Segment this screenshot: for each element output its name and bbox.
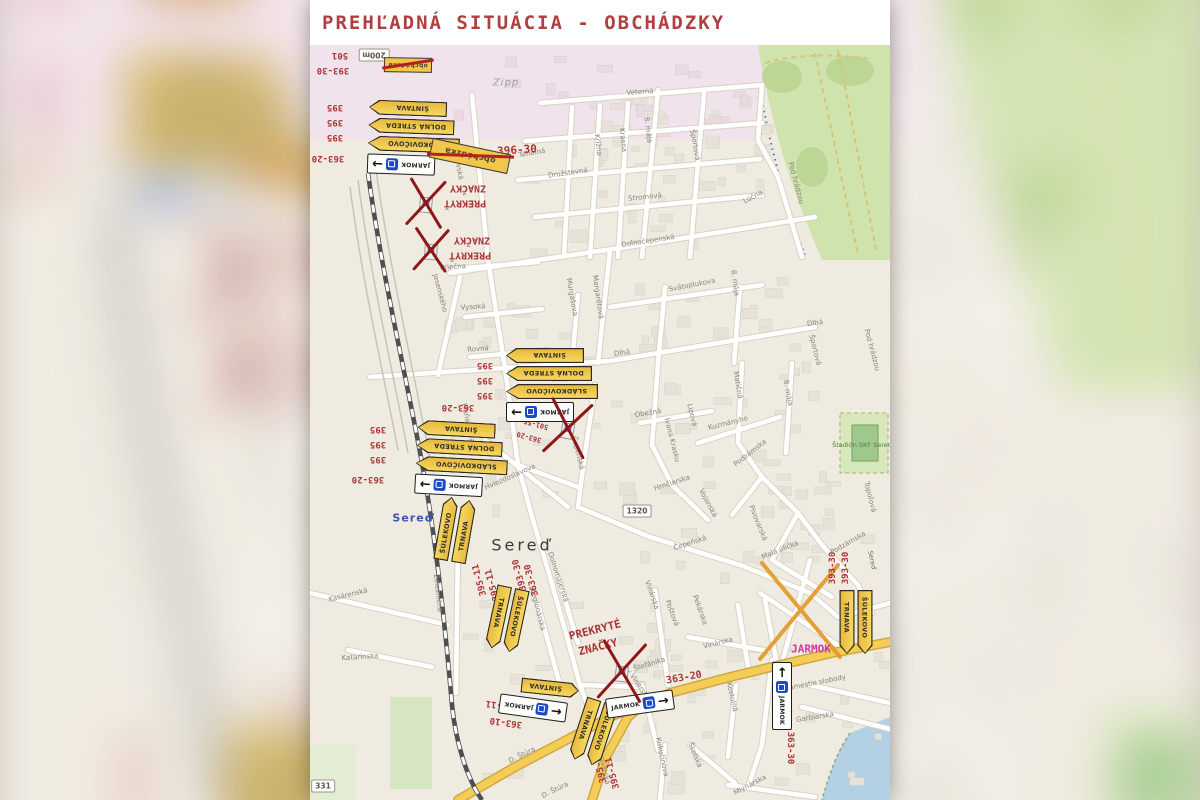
red-annotation: PREKRYŤ	[444, 198, 486, 209]
red-annotation: 395	[327, 132, 343, 142]
sign-removal-x-mark	[413, 227, 450, 273]
sign-label: DOLNÁ STREDA	[386, 122, 447, 132]
jarmok-sign: JARMOK→	[367, 153, 436, 175]
street-label: Ivana Krasku	[663, 417, 682, 463]
jarmok-pictogram-icon	[535, 702, 549, 716]
jarmok-pictogram-icon	[776, 681, 788, 693]
sign-face: ŠINTAVA	[418, 421, 494, 438]
red-annotation: 395	[477, 360, 493, 370]
street-label: Pivovarská	[747, 504, 769, 542]
sign-label: TRNAVA	[456, 520, 469, 552]
detour-plan-document: PREHĽADNÁ SITUÁCIA - OBCHÁDZKY	[310, 0, 890, 800]
street-label: Veterná	[626, 87, 654, 97]
sign-removal-x-mark	[542, 397, 593, 459]
red-annotation: 363-20	[516, 430, 543, 444]
sign-label: ŠINTAVA	[529, 682, 562, 693]
detour-direction-sign: DOLNÁ STREDA	[368, 117, 454, 135]
park-label: Štadión SKF Sereď	[832, 441, 890, 449]
sign-label: DOLNÁ STREDA	[434, 442, 495, 453]
jarmok-pictogram-icon	[433, 479, 446, 492]
town-label: Sereď	[491, 536, 552, 555]
park-label: Sereď	[866, 550, 878, 570]
street-label: Krásna	[618, 128, 628, 153]
sign-label: TRNAVA	[492, 597, 506, 629]
red-annotation: 395	[477, 375, 493, 385]
jarmok-sign-label: JARMOK	[779, 696, 786, 725]
street-label: Poštová	[664, 599, 681, 627]
document-title-bar: PREHĽADNÁ SITUÁCIA - OBCHÁDZKY	[310, 0, 890, 45]
street-label: Margarétová	[591, 275, 605, 320]
street-label: Dlhá	[614, 348, 631, 358]
x-bar	[602, 639, 641, 704]
detour-direction-sign: TRNAVA	[840, 590, 855, 654]
map-canvas: ZippVeterná8. májaKrásnaKrížnaTehelnáDru…	[310, 45, 890, 800]
detour-sign-pair: ŠÚLEKOVOTRNAVA	[433, 496, 477, 565]
red-annotation: 393-30	[317, 65, 350, 75]
sign-label: TRNAVA	[843, 602, 851, 633]
detour-direction-sign: ŠINTAVA	[506, 348, 584, 363]
x-bar	[410, 177, 443, 229]
sign-label: TRNAVA	[577, 709, 594, 741]
street-label: Pekárska	[691, 594, 709, 626]
street-label: Kukučínova	[654, 737, 670, 778]
street-label: Družstevná	[548, 166, 589, 179]
red-annotation: JARMOK	[791, 643, 831, 656]
screenshot-stage: PREHĽADNÁ SITUÁCIA - OBCHÁDZKY	[0, 0, 1200, 800]
red-annotation: 363-20	[665, 669, 702, 686]
direction-arrow-icon: →	[372, 157, 383, 170]
detour-direction-sign: ŠINTAVA	[369, 99, 447, 117]
sign-removal-x-mark	[597, 639, 647, 703]
detour-direction-sign: ŠINTAVA	[417, 420, 496, 439]
street-label: Topoľová	[862, 481, 877, 513]
street-label: Mlynárska	[732, 773, 767, 797]
x-bar	[551, 397, 585, 460]
direction-arrow-icon: →	[511, 406, 522, 419]
station-label: Sereď	[392, 512, 433, 525]
street-label: Katarínska	[341, 652, 378, 663]
street-label: Garbiarska	[796, 710, 835, 724]
sign-label: ŠÚLEKOVO	[438, 512, 453, 554]
sign-face: DOLNÁ STREDA	[418, 439, 502, 456]
street-label: Malá úlička	[760, 539, 799, 561]
street-label: Stromová	[628, 191, 662, 202]
detour-sign-cluster: JARMOK→SLÁDKOVIČOVODOLNÁ STREDAŠINTAVA	[367, 99, 462, 176]
street-label: Námestie slobody	[783, 673, 846, 693]
street-label: D. Štúra	[507, 745, 536, 765]
sign-face: ŠINTAVA	[522, 679, 579, 697]
direction-arrow-icon: ←	[550, 704, 563, 718]
direction-arrow-icon: ←	[776, 667, 789, 678]
red-annotation: 395	[327, 102, 343, 112]
street-label: Krížna	[593, 134, 603, 157]
sign-label: SLÁDKOVIČOVO	[436, 460, 497, 471]
sign-label: ŠINTAVA	[444, 425, 477, 435]
red-annotation: 393-30	[828, 552, 838, 585]
sign-face: TRNAVA	[841, 591, 854, 653]
page-title: PREHĽADNÁ SITUÁCIA - OBCHÁDZKY	[322, 12, 725, 34]
street-label: Lúčna	[742, 189, 764, 206]
red-annotation: 395	[370, 424, 386, 434]
jarmok-sign: JARMOK→	[414, 474, 483, 498]
red-annotation: 363-10	[489, 715, 523, 729]
red-annotation: ZNAČKY	[450, 183, 486, 194]
red-annotation: 395	[370, 454, 386, 464]
sign-label: DOLNÁ STREDA	[523, 370, 583, 378]
red-annotation: 395	[327, 117, 343, 127]
annotation-overlay: ZippVeterná8. májaKrásnaKrížnaTehelnáDru…	[310, 45, 890, 800]
jarmok-sign-label: JARMOK	[448, 482, 477, 491]
street-label: Hrnčiarska	[653, 473, 691, 492]
jarmok-pictogram-icon	[525, 406, 537, 418]
red-annotation: 363-20	[352, 474, 385, 484]
street-label: Školská	[686, 741, 703, 768]
street-label: 8. mája	[729, 269, 741, 296]
sign-face: DOLNÁ STREDA	[369, 119, 453, 135]
sign-label: ŠÚLEKOVO	[509, 595, 525, 637]
sign-face: ŠINTAVA	[507, 349, 583, 362]
detour-direction-sign: ŠÚLEKOVO	[858, 590, 873, 654]
street-label: D. Štúra	[540, 780, 569, 800]
red-annotation: 395	[370, 439, 386, 449]
street-label: Železničná	[432, 574, 444, 613]
red-annotation: 501	[332, 50, 348, 60]
jarmok-sign: ←JARMOK	[772, 662, 792, 730]
detour-direction-sign: SLÁDKOVIČOVO	[415, 456, 508, 476]
red-annotation: 395	[477, 390, 493, 400]
street-label: Dolnočepenská	[621, 233, 675, 249]
detour-direction-sign: DOLNÁ STREDA	[416, 438, 503, 457]
street-label: Obežná	[634, 407, 662, 419]
street-label: Murgašova	[565, 277, 580, 316]
street-label: Jesenského	[431, 273, 449, 313]
sign-label: ŠINTAVA	[533, 352, 566, 360]
detour-sign-cluster: JARMOK→SLÁDKOVIČOVODOLNÁ STREDAŠINTAVA	[414, 420, 510, 499]
street-label: Pod hrádzou	[787, 161, 806, 205]
street-label: Vinárska	[643, 580, 661, 611]
sign-face: SLÁDKOVIČOVO	[417, 457, 507, 474]
red-annotation: 363-20	[442, 402, 475, 412]
street-label: Kostolná	[725, 682, 739, 713]
street-label: Svätoplukova	[668, 277, 716, 294]
street-label: 8. mája	[782, 379, 794, 406]
area-label: Zipp	[493, 78, 519, 89]
jarmok-sign-label: JARMOK	[504, 701, 534, 712]
detour-direction-sign: DOLNÁ STREDA	[506, 366, 592, 381]
street-label: Rovná	[467, 344, 489, 353]
street-label: Kasárenská	[328, 586, 369, 603]
red-annotation: PREKRYŤ	[449, 250, 491, 261]
jarmok-sign-label: JARMOK	[401, 161, 430, 169]
road-number-shield: 331	[311, 780, 335, 793]
red-annotation: ZNAČKY	[454, 235, 490, 246]
detour-direction-sign: ŠINTAVA	[520, 678, 579, 699]
street-label: Dlhá	[807, 318, 824, 328]
crossed-detour-sign: obchádzka	[384, 57, 432, 73]
street-label: Pod hrádzou	[863, 328, 882, 372]
street-label: Čepeňská	[672, 534, 707, 552]
street-label: Kuzmányho	[707, 414, 748, 432]
direction-arrow-icon: →	[657, 694, 670, 708]
jarmok-pictogram-icon	[642, 696, 656, 710]
street-label: Podzámska	[732, 438, 768, 469]
sign-label: SLÁDKOVIČOVO	[526, 388, 587, 396]
sign-face: ŠINTAVA	[370, 101, 446, 116]
jarmok-pictogram-icon	[386, 158, 398, 170]
street-label: 8. mája	[642, 116, 653, 143]
street-label: Matičná	[732, 371, 745, 400]
detour-sign-pair: ŠÚLEKOVOTRNAVA	[840, 590, 873, 654]
red-annotation: 363-30	[785, 732, 795, 765]
sign-face: DOLNÁ STREDA	[507, 367, 591, 380]
sign-face: ŠÚLEKOVO	[859, 591, 872, 653]
red-annotation: 393-30	[841, 552, 851, 585]
street-label: Športová	[688, 129, 701, 161]
direction-arrow-icon: →	[419, 477, 431, 491]
street-label: Lipová	[685, 403, 698, 427]
street-label: Vysoká	[460, 302, 485, 312]
street-label: Vojanská	[697, 487, 719, 518]
sign-label: ŠINTAVA	[396, 104, 429, 113]
red-annotation: 363-20	[312, 153, 345, 163]
road-number-shield: 1320	[623, 505, 652, 518]
sign-label: ŠÚLEKOVO	[861, 597, 869, 638]
street-label: Vinárska	[702, 635, 733, 650]
street-label: Dolnomajerská	[546, 551, 570, 603]
street-label: Športová	[807, 334, 822, 367]
sign-removal-x-mark	[406, 177, 447, 229]
